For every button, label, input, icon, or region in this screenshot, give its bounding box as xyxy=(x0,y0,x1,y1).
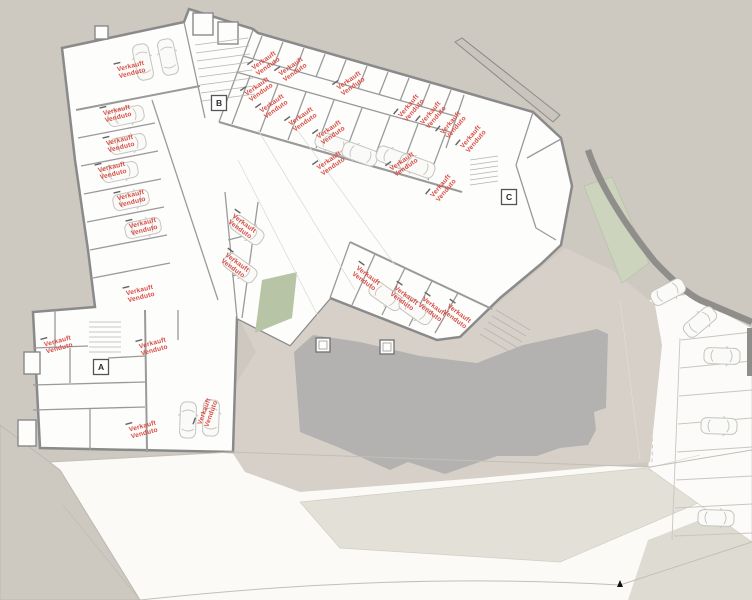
svg-text:B: B xyxy=(216,98,222,108)
stair-core-c: C xyxy=(502,190,517,205)
svg-text:A: A xyxy=(98,362,104,372)
svg-text:C: C xyxy=(506,192,512,202)
floor-plan-drawing: VerkauftVendutoVerkauftVendutoVerkauftVe… xyxy=(0,0,752,600)
car-outline xyxy=(701,415,738,436)
retaining-wall-segment xyxy=(747,328,752,376)
stair-core-b: B xyxy=(212,96,227,111)
floor-plan-svg: VerkauftVendutoVerkauftVendutoVerkauftVe… xyxy=(0,0,752,600)
car-outline xyxy=(698,507,735,528)
car-outline xyxy=(177,402,198,439)
car-outline xyxy=(704,345,741,366)
stair-core-a: A xyxy=(94,360,109,375)
